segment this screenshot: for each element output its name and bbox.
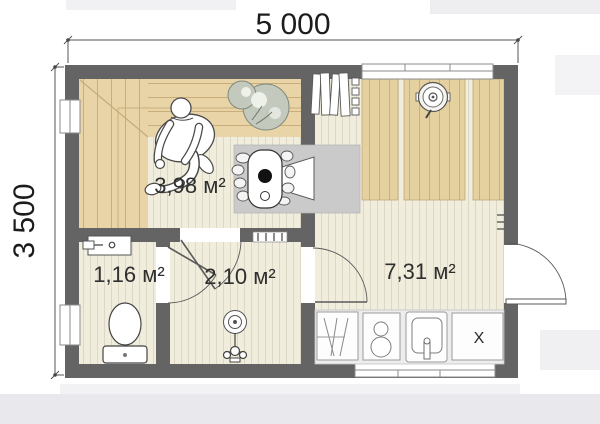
window-left-top <box>60 100 80 133</box>
entry-door-opening <box>504 245 518 303</box>
lounge-door-opening <box>301 247 315 303</box>
window-left-bottom <box>60 305 80 345</box>
wc-area-label: 1,16 м² <box>93 262 164 287</box>
sauna-area-label: 3,98 м² <box>154 173 225 198</box>
height-dimension-label: 3 500 <box>8 183 41 258</box>
lounge-area-label: 7,31 м² <box>384 259 455 284</box>
kitchen-counter: X <box>315 310 504 364</box>
floor-plan-page: X <box>0 0 600 424</box>
washbasin-symbol <box>83 236 131 255</box>
hooks-shower <box>253 232 287 242</box>
window-bottom <box>355 363 495 377</box>
wall-mid-vertical <box>301 79 315 364</box>
dish-rack-symbol <box>317 312 358 360</box>
wardrobe-symbol <box>311 73 359 116</box>
cabinet-x: X <box>452 313 503 360</box>
hob-symbol <box>363 313 400 360</box>
sauna-door-opening <box>180 228 240 242</box>
kitchen-sink-symbol <box>406 312 447 362</box>
cabinet-x-label: X <box>474 330 485 347</box>
width-dimension-label: 5 000 <box>255 8 330 41</box>
window-top <box>362 64 493 79</box>
wall-right <box>504 65 518 378</box>
floor-plan-canvas: X <box>0 0 600 424</box>
shower-area-label: 2,10 м² <box>204 264 275 289</box>
